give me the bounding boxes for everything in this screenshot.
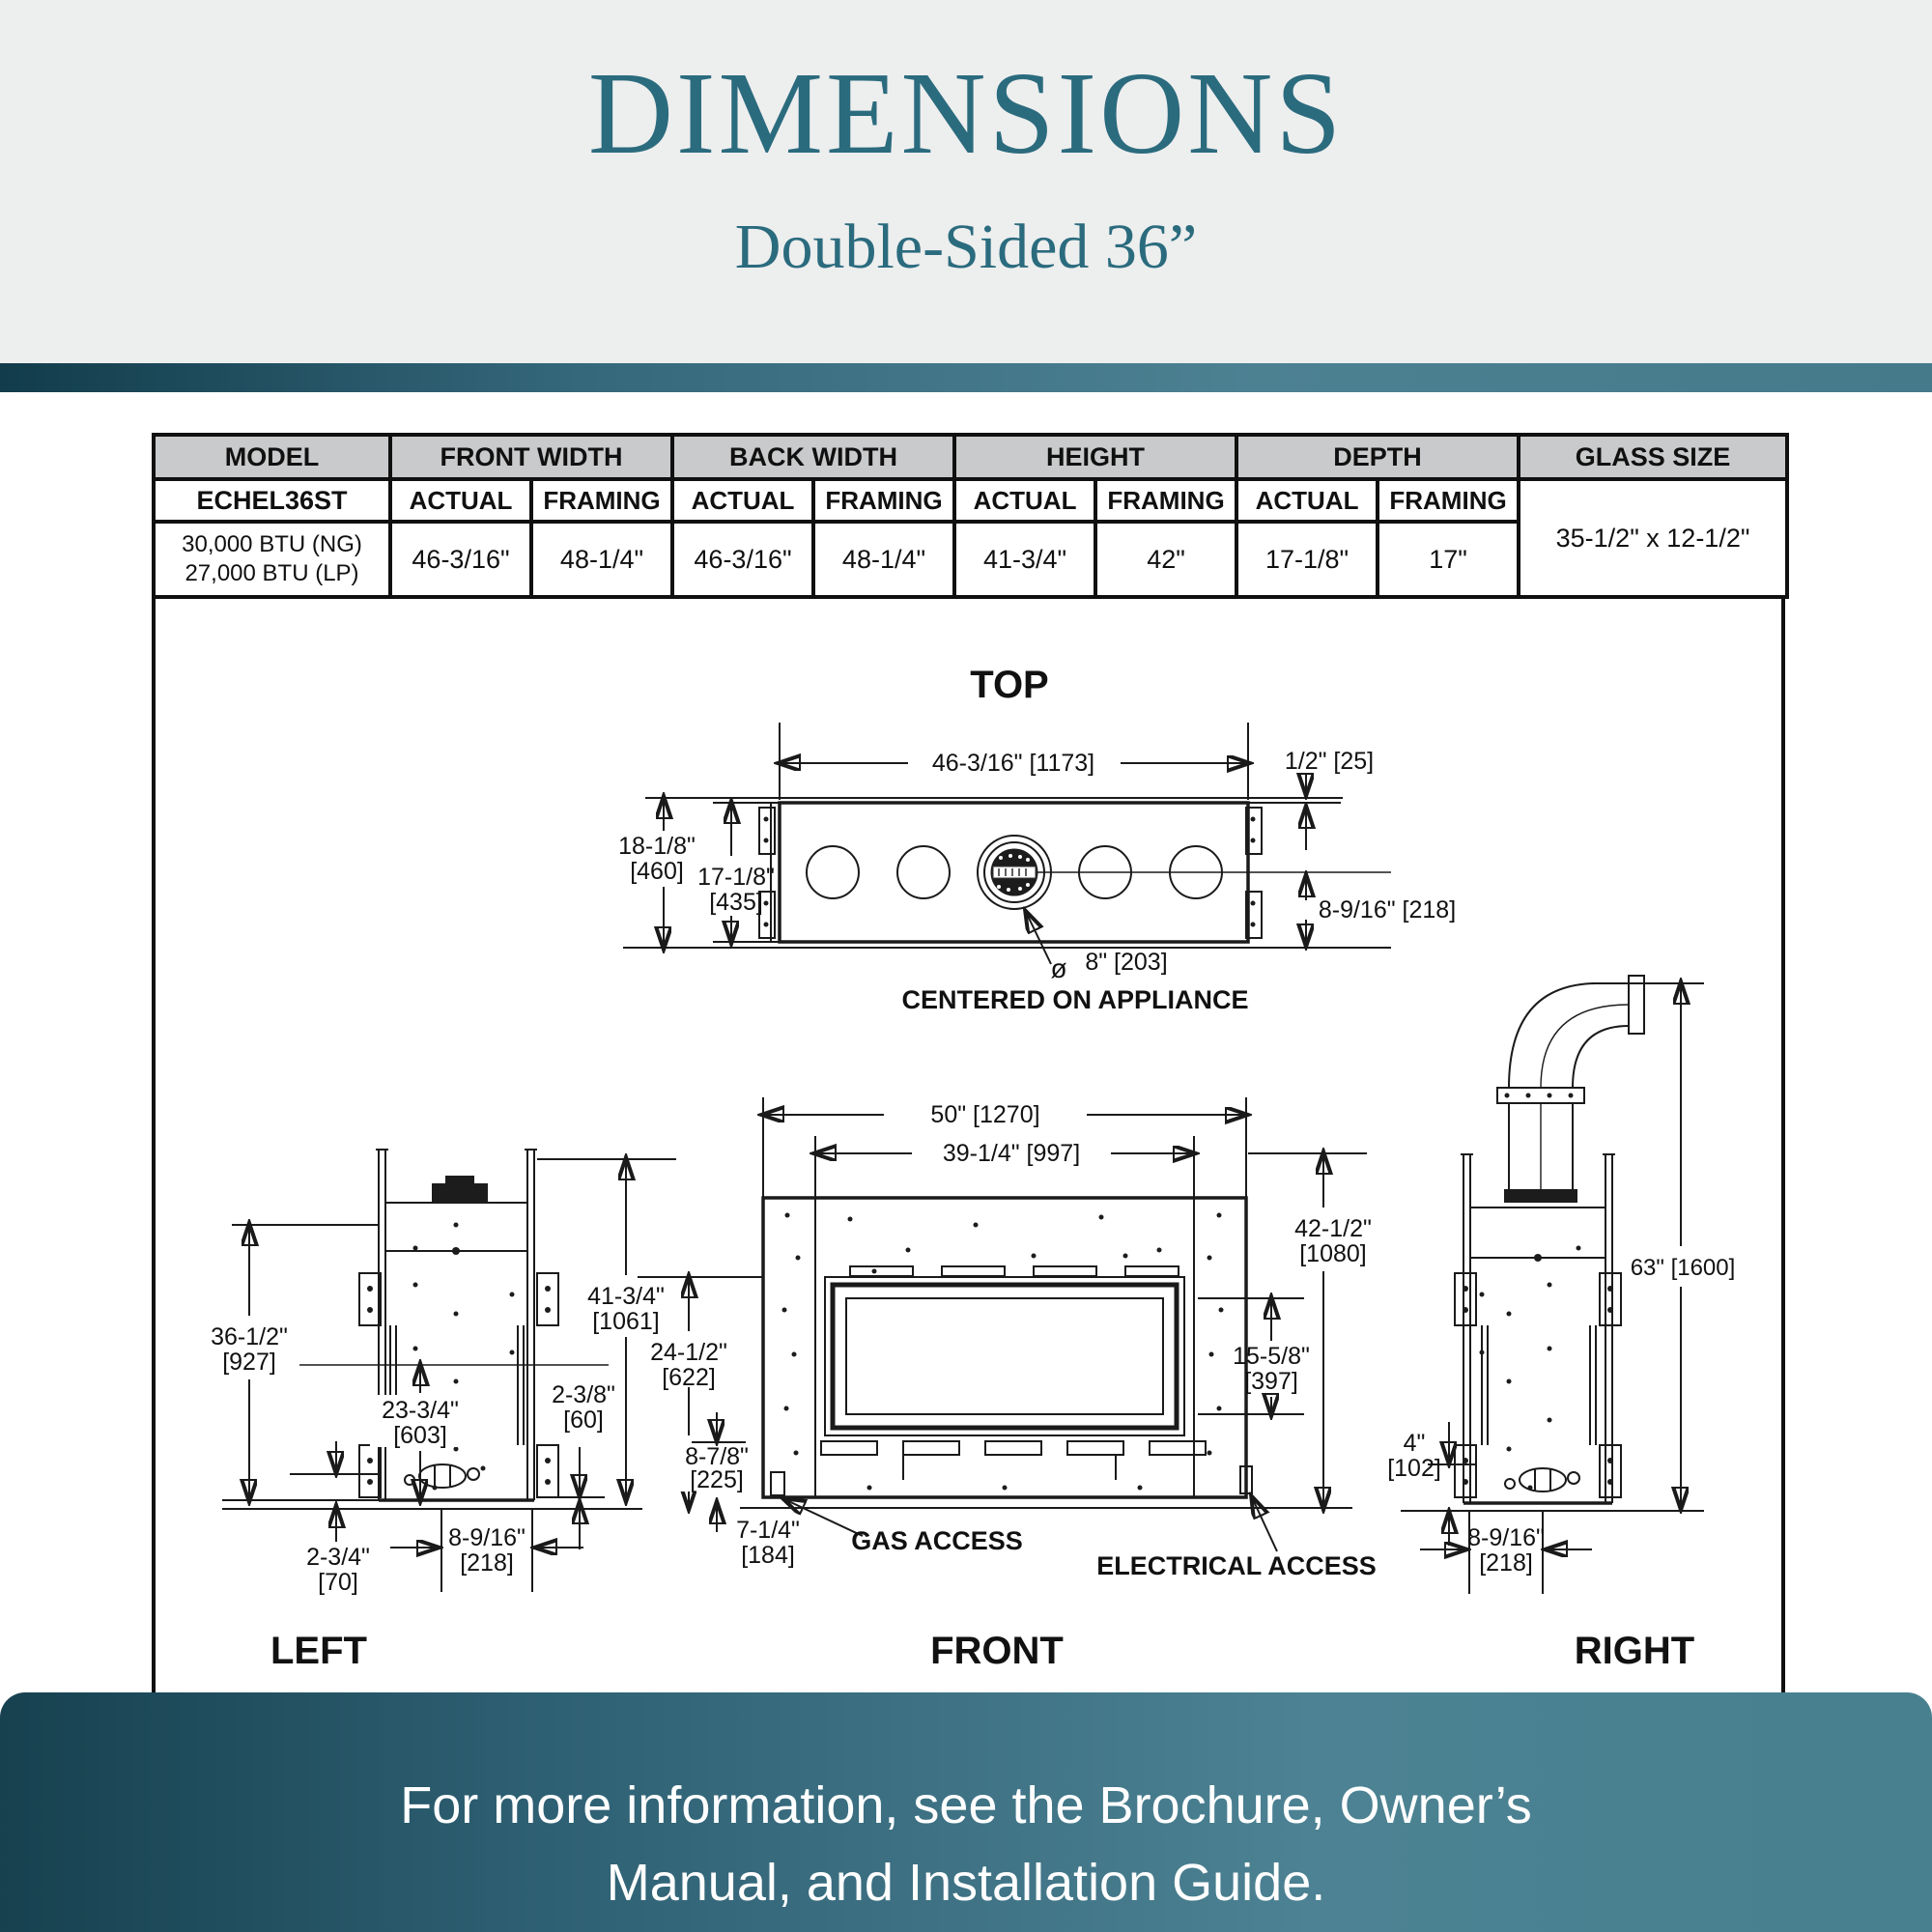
left-mid-height-mm: [603] <box>393 1422 447 1449</box>
right-clearance-mm: [102] <box>1387 1455 1441 1482</box>
front-gas-height-mm: [184] <box>741 1542 795 1569</box>
front-glass-height-mm: [397] <box>1244 1368 1298 1395</box>
depth-actual-label: ACTUAL <box>1236 479 1378 522</box>
left-gas-offset-mm: [218] <box>460 1549 514 1577</box>
back-width-framing-label: FRAMING <box>813 479 954 522</box>
left-base-dim: 2-3/4" <box>306 1544 370 1571</box>
col-height: HEIGHT <box>954 435 1236 479</box>
electrical-access-label: ELECTRICAL ACCESS <box>1096 1551 1377 1580</box>
left-standoff-mm: [60] <box>563 1406 604 1434</box>
right-view-title: RIGHT <box>1575 1630 1694 1672</box>
top-view-title: TOP <box>970 664 1049 706</box>
front-opening-width-dim: 39-1/4" [997] <box>943 1140 1080 1167</box>
height-framing-label: FRAMING <box>1095 479 1236 522</box>
left-overall-height-mm: [927] <box>222 1349 276 1376</box>
header: DIMENSIONS Double-Sided 36” <box>0 0 1932 363</box>
left-overall-height-dim: 36-1/2" <box>211 1323 288 1350</box>
col-front-width: FRONT WIDTH <box>390 435 672 479</box>
front-lower-height-mm: [225] <box>690 1466 744 1493</box>
left-framing-height-mm: [1061] <box>592 1308 660 1335</box>
right-total-height-dim: 63" [1600] <box>1631 1255 1736 1281</box>
front-width-actual-label: ACTUAL <box>390 479 531 522</box>
header-divider-band <box>0 363 1932 392</box>
front-framing-width-dim: 50" [1270] <box>930 1101 1039 1128</box>
front-view-title: FRONT <box>930 1630 1064 1672</box>
footer-text-line2: Manual, and Installation Guide. <box>0 1853 1932 1913</box>
left-mid-height-dim: 23-3/4" <box>382 1397 459 1424</box>
diameter-symbol: ø <box>1050 953 1066 983</box>
top-view: TOP 46-3/16" [1173] 1/2" [25] <box>618 664 1456 1014</box>
top-gap-dim: 1/2" [25] <box>1285 748 1374 775</box>
front-opening-height-mm: [622] <box>662 1364 716 1391</box>
table-subheader-row: ECHEL36ST ACTUAL FRAMING ACTUAL FRAMING … <box>154 479 1787 522</box>
left-view-title: LEFT <box>270 1630 367 1672</box>
spec-table: MODEL FRONT WIDTH BACK WIDTH HEIGHT DEPT… <box>152 433 1789 599</box>
technical-drawings: TOP 46-3/16" [1173] 1/2" [25] <box>152 582 1785 1696</box>
front-overall-height-dim: 42-1/2" <box>1294 1215 1372 1242</box>
front-view: 50" [1270] 39-1/4" [997] <box>638 1097 1377 1672</box>
col-depth: DEPTH <box>1236 435 1519 479</box>
top-overall-depth-mm: [460] <box>630 858 684 885</box>
dimensions-sheet: DIMENSIONS Double-Sided 36” MODEL FRONT … <box>0 0 1932 1932</box>
left-view: 36-1/2" [927] 23-3/4" [603] 41-3/4" [106… <box>211 1150 676 1672</box>
left-standoff-dim: 2-3/8" <box>552 1381 615 1408</box>
model-btu-ng: 30,000 BTU (NG) <box>156 530 388 559</box>
depth-framing-label: FRAMING <box>1378 479 1519 522</box>
right-clearance-dim: 4" <box>1404 1430 1426 1457</box>
page-subtitle: Double-Sided 36” <box>0 211 1932 284</box>
left-framing-height-dim: 41-3/4" <box>587 1283 665 1310</box>
front-width-framing-label: FRAMING <box>531 479 672 522</box>
col-model: MODEL <box>154 435 390 479</box>
top-flue-back-dim: 8-9/16" [218] <box>1319 896 1456 923</box>
footer-text-line1: For more information, see the Brochure, … <box>0 1776 1932 1835</box>
top-appliance-depth-mm: [435] <box>709 889 763 916</box>
top-appliance-depth-dim: 17-1/8" <box>697 864 775 891</box>
front-opening-height-dim: 24-1/2" <box>650 1339 727 1366</box>
left-base-mm: [70] <box>318 1569 358 1596</box>
top-overall-depth-dim: 18-1/8" <box>618 833 696 860</box>
glass-size-value: 35-1/2" x 12-1/2" <box>1519 479 1787 597</box>
top-centered-note: CENTERED ON APPLIANCE <box>901 985 1248 1014</box>
right-gas-offset-dim: 8-9/16" <box>1467 1524 1545 1551</box>
gas-access-label: GAS ACCESS <box>851 1526 1023 1555</box>
top-width-dim: 46-3/16" [1173] <box>932 750 1094 777</box>
model-name: ECHEL36ST <box>154 479 390 522</box>
col-back-width: BACK WIDTH <box>672 435 954 479</box>
top-flue-dia-dim: 8" [203] <box>1085 949 1167 976</box>
right-view: 63" [1600] 4" [102] 8-9/16" [218] RIGHT <box>1387 976 1735 1672</box>
page-title: DIMENSIONS <box>0 46 1932 182</box>
front-gas-height-dim: 7-1/4" <box>736 1517 800 1544</box>
col-glass-size: GLASS SIZE <box>1519 435 1787 479</box>
front-overall-height-mm: [1080] <box>1299 1240 1367 1267</box>
front-glass-height-dim: 15-5/8" <box>1233 1343 1310 1370</box>
height-actual-label: ACTUAL <box>954 479 1095 522</box>
back-width-actual-label: ACTUAL <box>672 479 813 522</box>
left-gas-offset-dim: 8-9/16" <box>448 1524 526 1551</box>
table-header-row: MODEL FRONT WIDTH BACK WIDTH HEIGHT DEPT… <box>154 435 1787 479</box>
right-gas-offset-mm: [218] <box>1479 1549 1533 1577</box>
